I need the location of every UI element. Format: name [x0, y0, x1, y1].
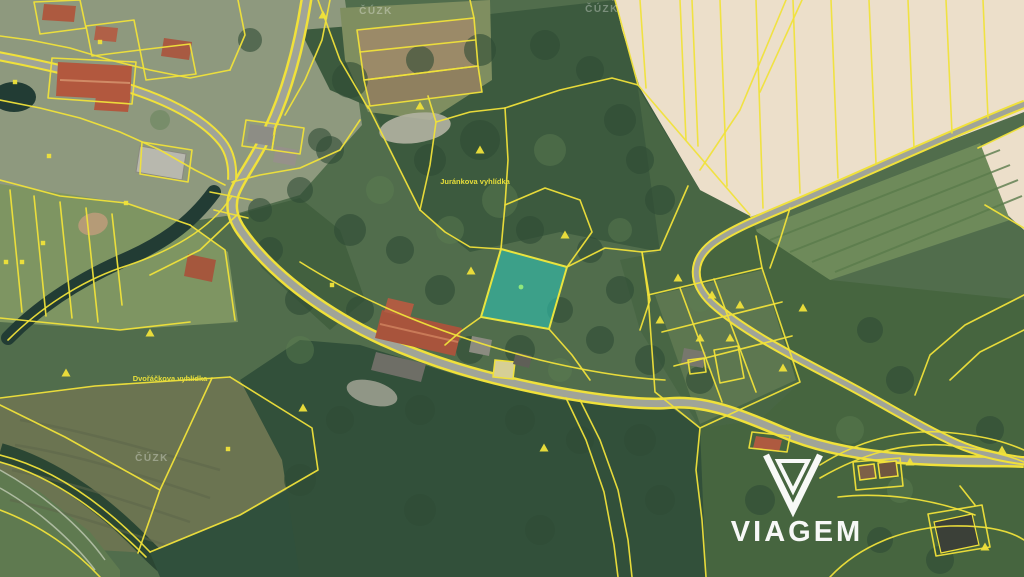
- parcel-center-marker: [519, 285, 524, 290]
- aerial-cadastral-map[interactable]: Juránkova vyhlídka Dvořáčkova vyhlídka Č…: [0, 0, 1024, 577]
- cuzk-watermark: ČÚZK: [585, 2, 619, 15]
- viagem-wordmark: VIAGEM: [731, 516, 863, 548]
- place-label-viewpoint-1: Juránkova vyhlídka: [440, 177, 510, 186]
- place-label-viewpoint-2: Dvořáčkova vyhlídka: [133, 374, 208, 383]
- cuzk-watermark: ČÚZK: [359, 4, 393, 17]
- cuzk-watermark: ČÚZK: [135, 451, 169, 464]
- map-canvas[interactable]: Juránkova vyhlídka Dvořáčkova vyhlídka Č…: [0, 0, 1024, 577]
